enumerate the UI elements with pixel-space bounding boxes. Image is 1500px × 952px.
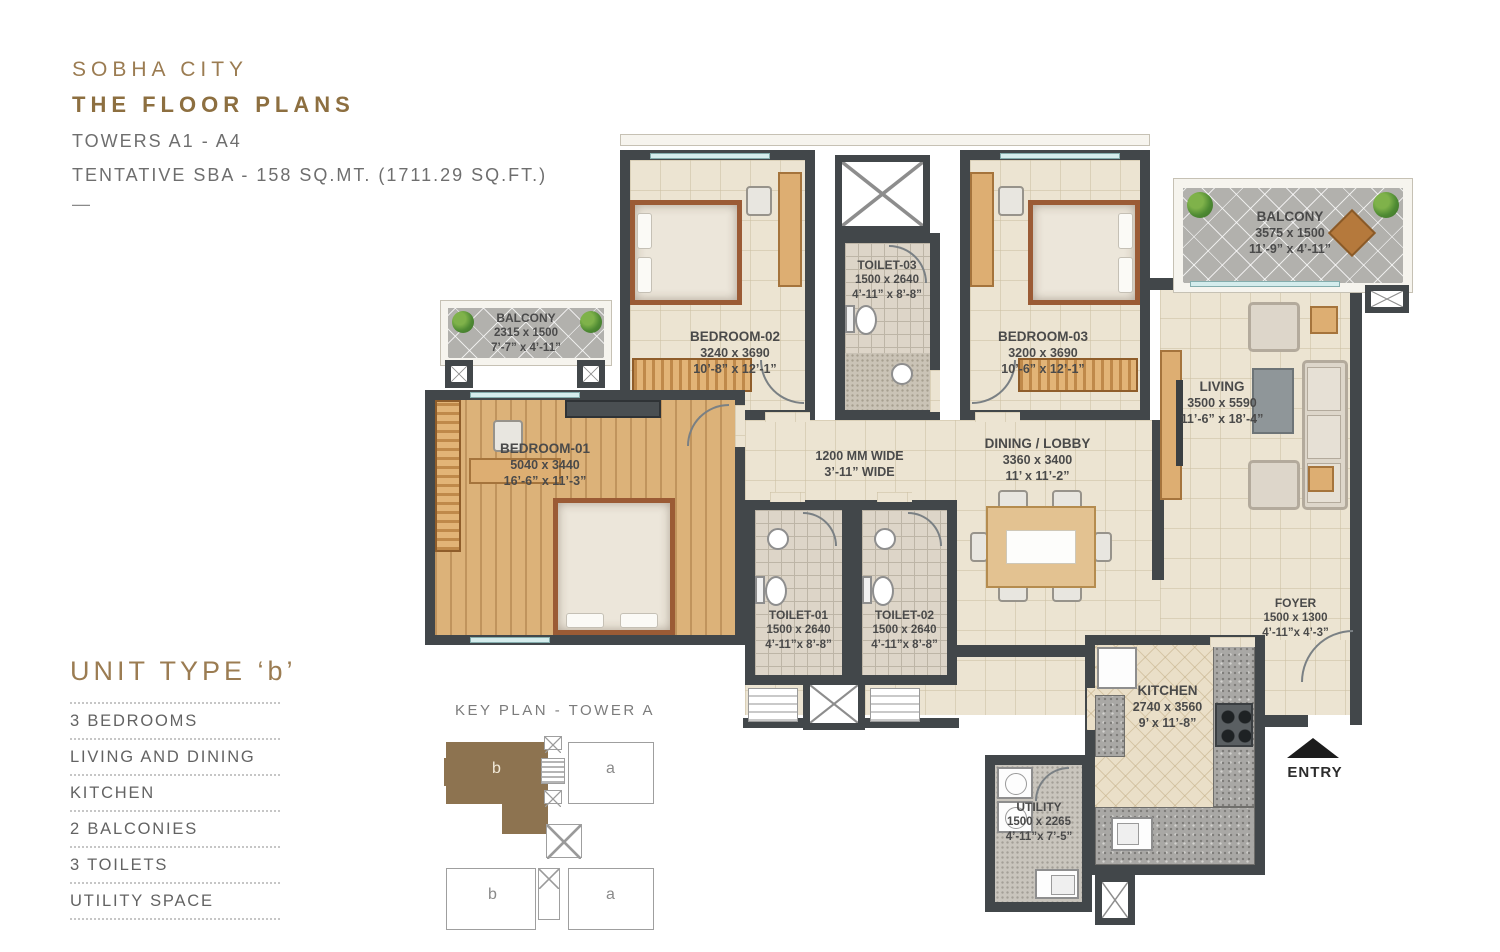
room-label-balcony2: BALCONY 3575 x 1500 11’-9” x 4’-11” <box>1210 208 1370 257</box>
room-name: DINING / LOBBY <box>960 435 1115 452</box>
pillow <box>566 613 604 628</box>
room-dim-mm: 3360 x 3400 <box>960 452 1115 468</box>
room-name: FOYER <box>1243 596 1348 611</box>
door-arc <box>803 512 837 546</box>
bed <box>630 200 742 305</box>
room-label-balcony1: BALCONY 2315 x 1500 7’-7” x 4’-11” <box>446 311 606 356</box>
feature-item: LIVING AND DINING <box>70 738 280 774</box>
room-dim-ft: 11’-6” x 18’-4” <box>1157 411 1287 427</box>
room-dim-ft: 4’-11”x 4’-3” <box>1243 626 1348 641</box>
sliding-door <box>1190 281 1340 287</box>
room-dim-mm: 1500 x 2640 <box>827 273 947 288</box>
door-arc <box>908 512 942 546</box>
room-dim-mm: 3500 x 5590 <box>1157 395 1287 411</box>
room-label-utility: UTILITY 1500 x 2265 4’-11”x 7’-5” <box>989 800 1089 845</box>
room-dim-ft: 4’-11” x 8’-8” <box>827 288 947 303</box>
room-label-toilet1: TOILET-01 1500 x 2640 4’-11”x 8’-8” <box>747 608 850 653</box>
room-bedroom3 <box>960 150 1150 420</box>
wash-basin <box>891 363 913 385</box>
room-dim-ft: 11’-9” x 4’-11” <box>1210 241 1370 257</box>
cistern <box>845 305 855 333</box>
bed <box>1028 200 1140 305</box>
room-kitchen <box>1085 635 1265 875</box>
pillow <box>637 257 652 293</box>
room-label-kitchen: KITCHEN 2740 x 3560 9’ x 11’-8” <box>1105 682 1230 731</box>
room-bedroom2 <box>620 150 815 420</box>
room-label-toilet2: TOILET-02 1500 x 2640 4’-11”x 8’-8” <box>853 608 956 653</box>
kitchen-sink <box>1111 817 1153 851</box>
shaft <box>445 360 473 388</box>
toilet-wc <box>872 576 894 606</box>
door-arc <box>1035 767 1069 801</box>
room-label-bedroom3: BEDROOM-03 3200 x 3690 10’-6” x 12’-1” <box>973 328 1113 377</box>
room-dim-ft: 9’ x 11’-8” <box>1105 715 1230 731</box>
washer <box>997 767 1033 799</box>
room-dim-mm: 3240 x 3690 <box>665 345 805 361</box>
dining-chair <box>1094 532 1112 562</box>
room-dim-ft: 11’ x 11’-2” <box>960 468 1115 484</box>
toilet-wc <box>765 576 787 606</box>
room-dim-mm: 1500 x 2265 <box>989 815 1089 830</box>
wall-foyer-south <box>1260 715 1308 727</box>
room-dim-mm: 2315 x 1500 <box>446 326 606 341</box>
feature-item: 3 TOILETS <box>70 846 280 882</box>
armchair <box>1248 302 1300 352</box>
room-name: UTILITY <box>989 800 1089 815</box>
room-dim-ft: 16’-6” x 11’-3” <box>455 473 635 489</box>
vent <box>870 688 920 722</box>
room-name: BALCONY <box>446 311 606 326</box>
living-furniture <box>1160 288 1350 640</box>
dining-set <box>970 490 1120 605</box>
floor-plan: ENTRY <box>415 130 1423 940</box>
door-opening <box>975 412 1020 422</box>
room-name: TOILET-01 <box>747 608 850 623</box>
door-opening <box>770 492 805 502</box>
unit-features-list: 3 BEDROOMS LIVING AND DINING KITCHEN 2 B… <box>70 702 280 920</box>
side-table <box>1310 306 1338 334</box>
room-dim-ft: 4’-11”x 8’-8” <box>853 638 956 653</box>
room-label-bedroom1: BEDROOM-01 5040 x 3440 16’-6” x 11’-3” <box>455 440 635 489</box>
entry-arrow-icon <box>1287 738 1339 758</box>
shaft <box>1365 285 1409 313</box>
unit-type-title: UNIT TYPE ‘b’ <box>70 656 297 687</box>
pillow <box>1118 257 1133 293</box>
shaft <box>577 360 605 388</box>
entry-label: ENTRY <box>1287 764 1343 781</box>
floor-plan-page: SOBHA CITY THE FLOOR PLANS TOWERS A1 - A… <box>0 0 1500 952</box>
room-dim-mm: 3200 x 3690 <box>973 345 1113 361</box>
page-title: THE FLOOR PLANS <box>72 92 547 118</box>
door-opening <box>877 492 912 502</box>
room-dim-ft: 7’-7” x 4’-11” <box>446 341 606 356</box>
room-toilet2 <box>852 500 957 685</box>
room-label-toilet3: TOILET-03 1500 x 2640 4’-11” x 8’-8” <box>827 258 947 303</box>
wash-basin <box>767 528 789 550</box>
side-table <box>1308 466 1334 492</box>
room-dim-mm: 1500 x 1300 <box>1243 611 1348 626</box>
window <box>470 392 580 398</box>
window <box>1000 153 1120 159</box>
sink-bowl <box>1117 823 1139 845</box>
toilet-wc <box>855 305 877 335</box>
shaft <box>835 155 930 233</box>
cistern <box>862 576 872 604</box>
window <box>470 637 550 643</box>
corridor-label: 1200 MM WIDE 3’-11” WIDE <box>777 448 942 480</box>
cistern <box>755 576 765 604</box>
vent <box>748 688 798 722</box>
room-dim-ft: 4’-11”x 7’-5” <box>989 830 1089 845</box>
room-name: TOILET-03 <box>827 258 947 273</box>
room-bedroom1 <box>425 390 745 645</box>
armchair <box>1248 460 1300 510</box>
wash-basin <box>874 528 896 550</box>
room-name: LIVING <box>1157 378 1287 395</box>
room-name: KITCHEN <box>1105 682 1230 699</box>
washer-drum <box>1005 773 1027 795</box>
room-name: BALCONY <box>1210 208 1370 225</box>
pillow <box>637 213 652 249</box>
door-opening <box>930 370 940 412</box>
corridor-width-ft: 3’-11” WIDE <box>777 464 942 480</box>
wall-dining-south <box>955 645 1097 657</box>
bed <box>553 498 675 635</box>
room-dim-mm: 2740 x 3560 <box>1105 699 1230 715</box>
room-dim-ft: 4’-11”x 8’-8” <box>747 638 850 653</box>
door-arc <box>687 404 729 446</box>
feature-item: 2 BALCONIES <box>70 810 280 846</box>
room-dim-ft: 10’-6” x 12’-1” <box>973 361 1113 377</box>
cushion <box>1307 415 1341 459</box>
pillow <box>1118 213 1133 249</box>
room-dim-ft: 10’-8” x 12’-1” <box>665 361 805 377</box>
room-label-bedroom2: BEDROOM-02 3240 x 3690 10’-8” x 12’-1” <box>665 328 805 377</box>
shaft <box>1095 875 1135 925</box>
feature-item: KITCHEN <box>70 774 280 810</box>
shaft <box>803 678 865 730</box>
chair <box>998 186 1024 216</box>
room-name: BEDROOM-02 <box>665 328 805 345</box>
window <box>650 153 770 159</box>
shower-area <box>845 353 930 410</box>
room-name: BEDROOM-01 <box>455 440 635 457</box>
dining-table <box>986 506 1096 588</box>
room-dim-mm: 1500 x 2640 <box>853 623 956 638</box>
utility-sink <box>1035 869 1079 899</box>
study-table <box>778 172 802 287</box>
room-name: TOILET-02 <box>853 608 956 623</box>
project-name: SOBHA CITY <box>72 58 547 82</box>
feature-item: UTILITY SPACE <box>70 882 280 918</box>
door-opening <box>735 405 745 447</box>
room-label-foyer: FOYER 1500 x 1300 4’-11”x 4’-3” <box>1243 596 1348 641</box>
door-opening <box>1087 688 1095 730</box>
sink-bowl <box>1051 875 1075 895</box>
room-label-dining: DINING / LOBBY 3360 x 3400 11’ x 11’-2” <box>960 435 1115 484</box>
tv-console <box>565 400 661 418</box>
room-dim-mm: 3575 x 1500 <box>1210 225 1370 241</box>
table-runner <box>1006 530 1076 564</box>
chair <box>746 186 772 216</box>
room-name: BEDROOM-03 <box>973 328 1113 345</box>
room-toilet1 <box>745 500 852 685</box>
room-dim-mm: 5040 x 3440 <box>455 457 635 473</box>
study-table <box>970 172 994 287</box>
shade-strip <box>620 134 1150 146</box>
plant <box>1373 192 1399 218</box>
cushion <box>1307 367 1341 411</box>
room-dim-mm: 1500 x 2640 <box>747 623 850 638</box>
corridor-width-mm: 1200 MM WIDE <box>777 448 942 464</box>
pillow <box>620 613 658 628</box>
door-opening <box>765 412 810 422</box>
feature-item: 3 BEDROOMS <box>70 702 280 738</box>
room-label-living: LIVING 3500 x 5590 11’-6” x 18’-4” <box>1157 378 1287 427</box>
